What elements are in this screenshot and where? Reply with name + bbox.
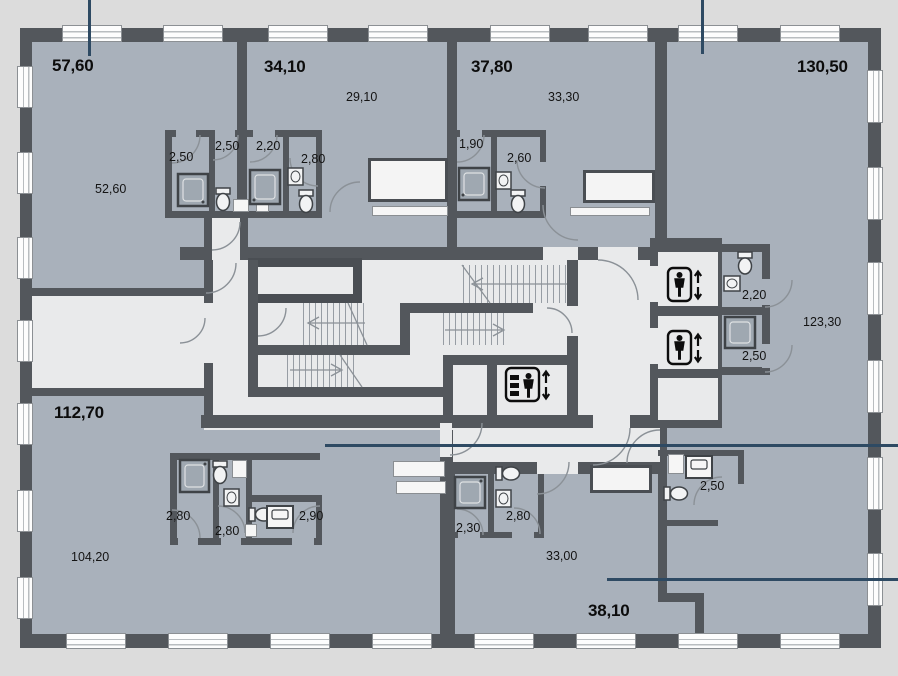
window [17, 577, 33, 619]
wall [488, 474, 494, 532]
wall [453, 211, 546, 218]
leader-line-apt4 [701, 0, 704, 54]
stair-flight [287, 355, 357, 387]
door-opening [204, 303, 213, 363]
door-opening [253, 130, 275, 137]
cabinet [232, 460, 247, 478]
apt2-living-label: 29,10 [346, 90, 377, 104]
door-opening [215, 130, 235, 137]
apt4-living-label: 123,30 [803, 315, 841, 329]
window [867, 262, 883, 315]
wall [170, 453, 177, 545]
door-opening [650, 266, 658, 302]
wall [201, 415, 593, 428]
apt5-bath-label: 2,80 [215, 524, 239, 538]
door-opening [292, 538, 314, 545]
apt3-living-label: 33,30 [548, 90, 579, 104]
window [474, 633, 534, 649]
wall [738, 450, 744, 484]
leader-line-apt1 [88, 0, 91, 56]
window [17, 403, 33, 445]
cabinet [668, 454, 684, 474]
cabinet [256, 199, 269, 212]
apt6-bath-label: 2,80 [506, 509, 530, 523]
window [867, 360, 883, 413]
wardrobe [368, 158, 448, 202]
window [163, 25, 223, 42]
apt1-total-label: 57,60 [52, 56, 94, 76]
shelf [396, 481, 446, 494]
door-opening [440, 423, 452, 457]
window [168, 633, 228, 649]
window [17, 152, 33, 194]
apt5-living-label: 104,20 [71, 550, 109, 564]
shelf [570, 207, 650, 216]
wall [283, 130, 289, 218]
apt4-total-label: 130,50 [797, 57, 848, 77]
window [588, 25, 648, 42]
window [678, 25, 738, 42]
wardrobe [590, 465, 652, 493]
apt1-bath-label: 2,50 [169, 150, 193, 164]
window [17, 66, 33, 108]
apt2-bath-label: 2,20 [256, 139, 280, 153]
wall [443, 355, 578, 365]
door-opening [221, 538, 241, 545]
window [17, 490, 33, 532]
door-opening [650, 328, 658, 364]
door-opening [593, 415, 630, 428]
door-opening [540, 162, 546, 186]
wall [32, 388, 204, 396]
apt5-bath-label: 2,90 [299, 509, 323, 523]
corridor-left [32, 296, 204, 388]
apt6-living-label: 33,00 [546, 549, 577, 563]
wall [658, 520, 718, 526]
floor-plan: 57,60 34,10 37,80 130,50 112,70 38,10 52… [0, 0, 898, 676]
apt3-bath-label: 2,60 [507, 151, 531, 165]
door-opening [212, 247, 240, 260]
wall [32, 288, 204, 296]
apt5-bath-label: 2,80 [166, 509, 190, 523]
wall [165, 211, 322, 218]
window [270, 633, 330, 649]
window [17, 237, 33, 279]
apt3-bath-label: 1,90 [459, 137, 483, 151]
wall [248, 260, 258, 397]
apt1-living-label: 52,60 [95, 182, 126, 196]
leader-line-right-bottom [607, 578, 898, 581]
stair-flight [443, 313, 507, 345]
door-opening [460, 130, 482, 137]
door-opening [512, 532, 534, 538]
wall [246, 495, 322, 502]
wall [170, 453, 320, 460]
shelf [372, 206, 448, 216]
wall [248, 387, 453, 397]
wall [567, 260, 578, 418]
apt3-total-label: 37,80 [471, 57, 513, 77]
corridor-bottom [453, 423, 660, 462]
apartment-6-region[interactable] [658, 602, 695, 634]
door-opening [598, 247, 638, 260]
window [780, 25, 840, 42]
window [867, 167, 883, 220]
wall [316, 130, 322, 218]
cabinet [233, 199, 249, 212]
apt5-total-label: 112,70 [54, 403, 104, 423]
apt2-bath-label: 2,80 [301, 152, 325, 166]
stair-flight [303, 303, 367, 345]
wall [237, 42, 247, 135]
wall [407, 303, 533, 313]
window [678, 633, 738, 649]
duct-shaft [248, 258, 362, 303]
window [268, 25, 328, 42]
window [867, 70, 883, 123]
window [17, 320, 33, 362]
stair-flight [463, 265, 567, 303]
door-opening [176, 130, 196, 137]
apt4-bath-label: 2,20 [742, 288, 766, 302]
elevator-lobby-cell [658, 378, 718, 420]
leader-line-right-mid [325, 444, 898, 447]
apt4-bath-label: 2,50 [700, 479, 724, 493]
elevator-cab-1 [658, 252, 718, 306]
window [372, 633, 432, 649]
wall [538, 474, 544, 532]
window [368, 25, 428, 42]
window [576, 633, 636, 649]
window [62, 25, 122, 42]
apt1-bath-label: 2,50 [215, 139, 239, 153]
door-opening [567, 306, 578, 336]
shelf [393, 461, 445, 477]
door-opening [543, 247, 578, 260]
cabinet [245, 524, 257, 537]
window [490, 25, 550, 42]
elevator-cab-2 [658, 316, 718, 369]
window [867, 457, 883, 510]
wall [491, 130, 497, 218]
apt2-total-label: 34,10 [264, 57, 306, 77]
wall [487, 365, 497, 420]
wall [165, 130, 172, 218]
wall [695, 593, 704, 634]
door-opening [178, 538, 198, 545]
apt6-total-label: 38,10 [588, 601, 630, 621]
door-opening [537, 462, 578, 474]
window [66, 633, 126, 649]
window [780, 633, 840, 649]
wall [658, 462, 667, 602]
apt6-bath-label: 2,30 [456, 521, 480, 535]
wardrobe [583, 170, 655, 203]
apt4-bath-label: 2,50 [742, 349, 766, 363]
wall [248, 345, 410, 355]
